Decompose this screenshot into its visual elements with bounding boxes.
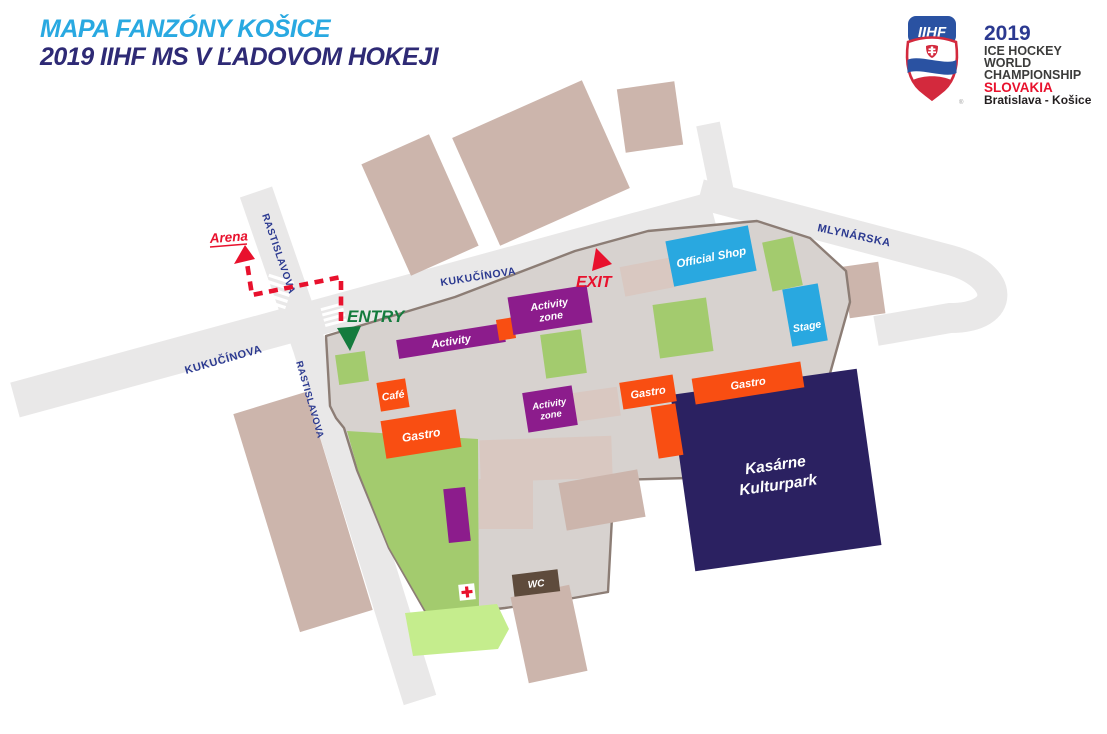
map-title-line2: 2019 IIHF MS V ĽADOVOM HOKEJI: [39, 43, 440, 71]
iihf-logo: IIHF ® 2019 ICE HOCKEY WORLD CHAMPIONSHI…: [907, 16, 1092, 107]
exit-label: EXIT: [576, 274, 613, 291]
green-area: [335, 351, 369, 385]
paved-patch: [479, 436, 612, 483]
route-arrowhead-icon: [234, 245, 255, 264]
entry-label: ENTRY: [347, 307, 406, 326]
fanzone-map-canvas: Kasárne Kulturpark Official Shop Stage A…: [0, 0, 1107, 734]
double-cross-icon: [931, 47, 933, 56]
arena-label: Arena: [208, 228, 249, 246]
iihf-logo-text-block: 2019 ICE HOCKEY WORLD CHAMPIONSHIP SLOVA…: [984, 22, 1092, 107]
first-aid: [458, 583, 476, 601]
page-title: MAPA FANZÓNY KOŠICE 2019 IIHF MS V ĽADOV…: [39, 13, 440, 71]
double-cross-icon: [929, 48, 936, 50]
registered-mark: ®: [959, 99, 964, 106]
green-area: [540, 329, 587, 378]
green-area-light: [405, 604, 509, 656]
logo-year: 2019: [984, 22, 1031, 45]
building: [511, 585, 588, 684]
slovakia-shield-icon: ®: [907, 38, 964, 107]
building: [452, 80, 630, 246]
building: [617, 81, 683, 152]
paved-patch: [479, 479, 533, 529]
green-area: [653, 298, 714, 359]
wc-label: WC: [527, 578, 546, 591]
map-title-line1: MAPA FANZÓNY KOŠICE: [40, 13, 332, 43]
double-cross-icon: [928, 51, 936, 53]
logo-cities: Bratislava - Košice: [984, 93, 1092, 107]
shield-red-base: [913, 76, 951, 99]
